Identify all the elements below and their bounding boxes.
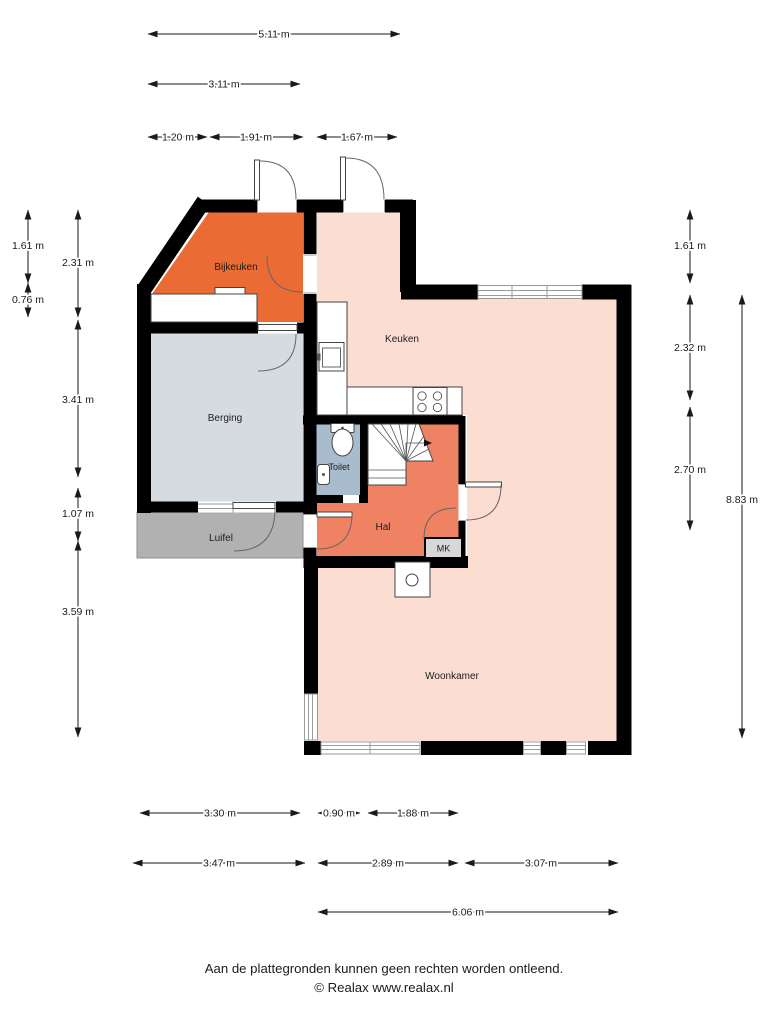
dimension-bottom-4: 2.89 m	[318, 858, 458, 870]
dimension-label: 1.07 m	[62, 508, 94, 520]
dimension-right-2: 2.70 m	[674, 407, 706, 530]
room-label-bijkeuken: Bijkeuken	[214, 262, 257, 273]
dimension-label: 3.30 m	[204, 808, 236, 820]
dimension-left-0: 1.61 m	[12, 210, 44, 283]
window-woonkamer-bottom-1	[321, 742, 420, 754]
dimension-bottom-2: 1.88 m	[368, 808, 458, 820]
dimension-label: 3.11 m	[208, 79, 240, 91]
dimension-right-0: 1.61 m	[674, 210, 706, 283]
dimension-bottom-0: 3.30 m	[140, 808, 300, 820]
dimension-label: 3.41 m	[62, 394, 94, 406]
room-label-berging: Berging	[208, 413, 242, 424]
footer-disclaimer: Aan de plattegronden kunnen geen rechten…	[205, 961, 564, 976]
kitchen-sink-icon	[317, 343, 344, 372]
dimension-left-1: 0.76 m	[12, 283, 44, 317]
dimension-left-2: 2.31 m	[62, 210, 94, 317]
window-woonkamer-bottom-3	[567, 742, 586, 754]
dimension-left-4: 1.07 m	[62, 488, 94, 541]
dimension-label: 2.89 m	[372, 858, 404, 870]
dimension-label: 5.11 m	[258, 29, 290, 41]
dimension-right-3: 8.83 m	[726, 295, 758, 738]
room-label-keuken: Keuken	[385, 334, 419, 345]
toilet-icon	[331, 424, 354, 457]
dimension-label: 0.76 m	[12, 294, 44, 306]
dimension-label: 6.06 m	[452, 907, 484, 919]
dimension-label: 8.83 m	[726, 494, 758, 506]
footer: Aan de plattegronden kunnen geen rechten…	[205, 961, 564, 995]
dimension-label: 1.20 m	[162, 132, 194, 144]
dimension-left-3: 3.41 m	[62, 320, 94, 477]
room-label-toilet: Toilet	[328, 462, 350, 472]
door-bijkeuken-berging	[258, 325, 297, 331]
dimension-label: 3.47 m	[203, 858, 235, 870]
dimension-right-1: 2.32 m	[674, 295, 706, 400]
room-label-hal: Hal	[375, 522, 390, 533]
meter-closet: MK	[425, 538, 462, 558]
dimension-label: 3.07 m	[525, 858, 557, 870]
floor-plan-svg: MK Bijkeuken Berging Luifel Keuken Toile…	[0, 0, 768, 1024]
door-front-hal	[317, 512, 352, 517]
footer-copyright: © Realax www.realax.nl	[314, 980, 454, 995]
door-hal-woonkamer	[466, 482, 502, 487]
dimension-top-2: 1.20 m	[148, 132, 207, 144]
dimension-label: 1.61 m	[12, 240, 44, 252]
window-woonkamer-bottom-2	[524, 742, 541, 754]
dimension-label: 1.61 m	[674, 240, 706, 252]
dimension-bottom-3: 3.47 m	[133, 858, 305, 870]
dimension-label: 1.67 m	[341, 132, 373, 144]
dimension-label: 0.90 m	[323, 808, 355, 820]
dimension-label: 2.70 m	[674, 464, 706, 476]
dimension-bottom-5: 3.07 m	[465, 858, 618, 870]
dimension-label: 3.59 m	[62, 606, 94, 618]
window-woonkamer-left	[305, 694, 318, 740]
fireplace-icon	[395, 562, 430, 597]
dimension-top-3: 1.91 m	[210, 132, 303, 144]
dimension-bottom-1: 0.90 m	[318, 808, 360, 820]
stove-icon	[413, 388, 447, 416]
dimension-top-1: 3.11 m	[148, 79, 300, 91]
dimension-label: 1.88 m	[397, 808, 429, 820]
dimension-top-4: 1.67 m	[317, 132, 397, 144]
dimension-top-0: 5.11 m	[148, 29, 400, 41]
dimension-label: 2.32 m	[674, 342, 706, 354]
door-berging-luifel	[233, 503, 275, 509]
door-keuken-exterior	[341, 157, 346, 200]
room-label-woonkamer: Woonkamer	[425, 671, 479, 682]
dimension-label: 2.31 m	[62, 257, 94, 269]
window-keuken-top	[478, 286, 582, 299]
dimension-label: 1.91 m	[240, 132, 272, 144]
door-bijkeuken-exterior	[255, 160, 260, 200]
room-label-luifel: Luifel	[209, 533, 233, 544]
floorplan-page: MK Bijkeuken Berging Luifel Keuken Toile…	[0, 0, 768, 1024]
dimension-left-5: 3.59 m	[62, 541, 94, 737]
room-label-mk: MK	[437, 544, 451, 554]
dimension-bottom-6: 6.06 m	[318, 907, 618, 919]
